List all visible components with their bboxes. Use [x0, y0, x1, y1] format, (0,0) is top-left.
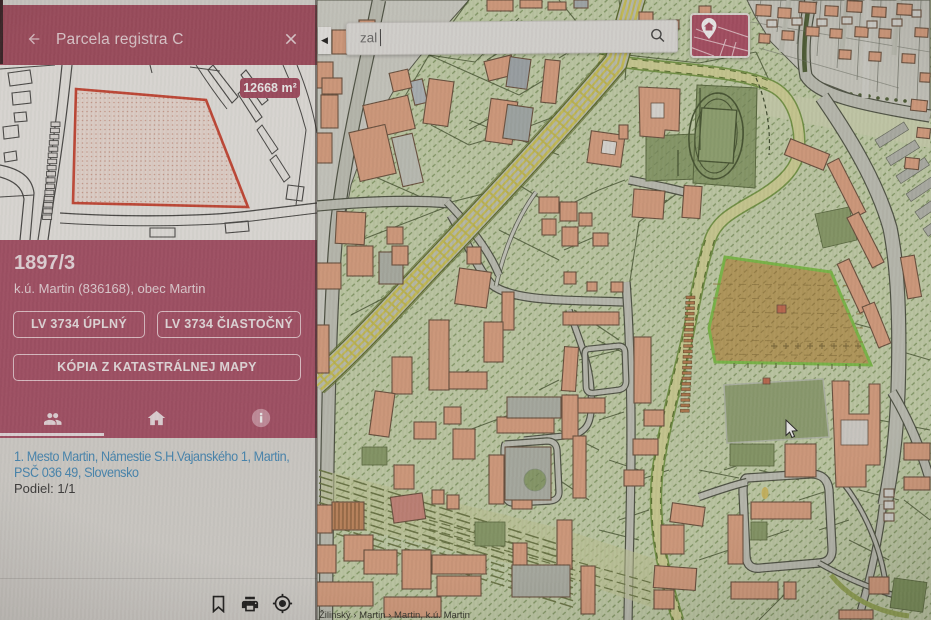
- svg-text:Žilinský › Martin › Martin, k.: Žilinský › Martin › Martin, k.ú. Martin: [319, 610, 470, 620]
